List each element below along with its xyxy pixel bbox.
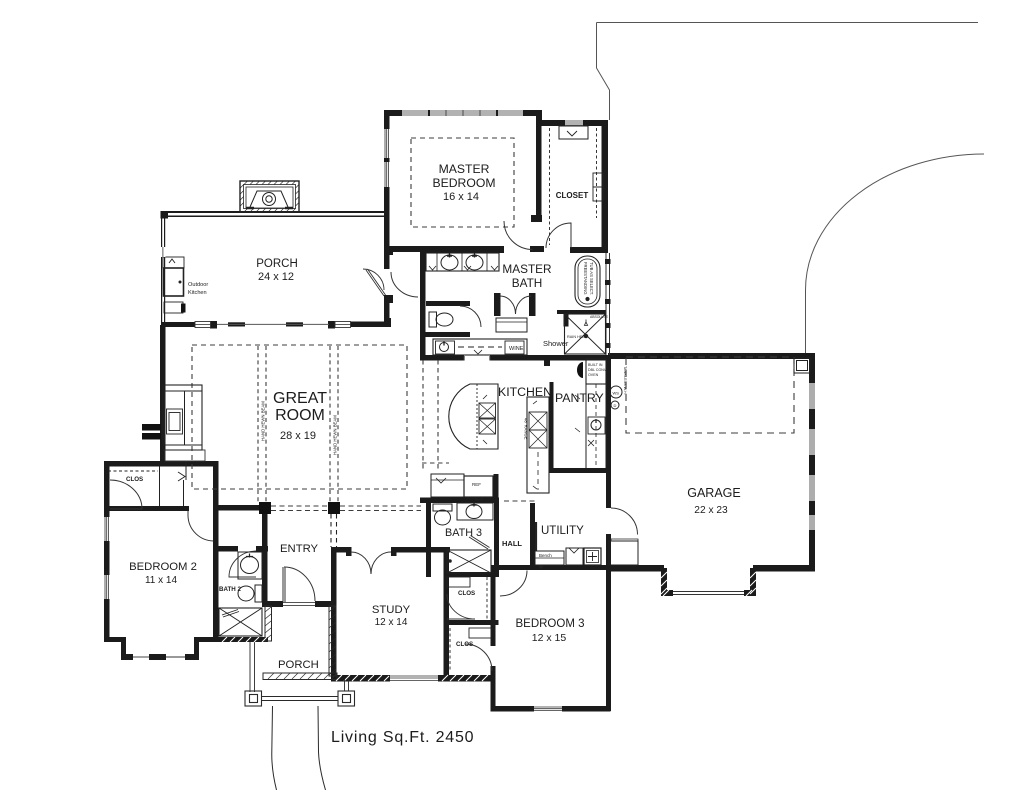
svg-text:ABSOLUTE: ABSOLUTE	[590, 315, 609, 319]
svg-text:16 x 14: 16 x 14	[443, 191, 479, 203]
svg-text:PANTRY: PANTRY	[555, 391, 604, 405]
svg-text:PORCH: PORCH	[256, 258, 298, 270]
svg-text:BEDROOM 3: BEDROOM 3	[515, 618, 584, 630]
svg-text:24 x 12: 24 x 12	[258, 271, 294, 283]
svg-text:48' RANGE: 48' RANGE	[524, 418, 529, 440]
svg-text:PORCH: PORCH	[278, 659, 319, 671]
svg-text:HAND HEWN BEAM: HAND HEWN BEAM	[333, 415, 338, 455]
svg-text:WS: WS	[613, 391, 620, 396]
svg-text:28 x 19: 28 x 19	[280, 430, 316, 442]
svg-text:12 x 15: 12 x 15	[532, 632, 567, 644]
svg-text:12 x 14: 12 x 14	[375, 617, 408, 628]
svg-text:MASTER: MASTER	[439, 162, 490, 176]
svg-text:BATH 3: BATH 3	[445, 527, 482, 539]
svg-text:WINE: WINE	[509, 346, 524, 352]
svg-text:CLOS: CLOS	[456, 641, 473, 648]
svg-text:BATH 2: BATH 2	[219, 586, 241, 593]
svg-text:BEDROOM: BEDROOM	[433, 176, 496, 190]
svg-text:RAIN HEAD: RAIN HEAD	[567, 335, 588, 339]
svg-text:ENTRY: ENTRY	[280, 543, 319, 555]
svg-text:CLOSET: CLOSET	[556, 191, 589, 200]
svg-text:HAND HEWN BEAM: HAND HEWN BEAM	[261, 401, 266, 441]
svg-text:DBL CONV: DBL CONV	[588, 368, 607, 372]
svg-text:UTILITY: UTILITY	[541, 525, 584, 537]
svg-text:Outdoor: Outdoor	[188, 282, 208, 288]
svg-text:Shower: Shower	[543, 339, 569, 348]
svg-text:GREAT: GREAT	[273, 390, 327, 407]
svg-text:BEDROOM 2: BEDROOM 2	[129, 561, 197, 573]
svg-text:Living Sq.Ft. 2450: Living Sq.Ft. 2450	[331, 729, 474, 746]
svg-text:OVEN: OVEN	[588, 373, 599, 377]
svg-text:BUILT IN: BUILT IN	[588, 363, 603, 367]
svg-text:KITCHEN: KITCHEN	[498, 385, 552, 399]
svg-text:Kitchen: Kitchen	[188, 290, 207, 296]
svg-text:Bench: Bench	[539, 553, 552, 558]
svg-text:22 x 23: 22 x 23	[694, 505, 728, 516]
svg-text:TUB AS SELECT.: TUB AS SELECT.	[589, 262, 594, 295]
svg-text:REF: REF	[472, 482, 481, 487]
svg-text:STUDY: STUDY	[372, 604, 411, 616]
svg-text:11 x 14: 11 x 14	[145, 575, 177, 586]
svg-text:TANKLESS W.H.: TANKLESS W.H.	[623, 366, 627, 395]
svg-text:ROOM: ROOM	[275, 407, 325, 424]
svg-text:GARAGE: GARAGE	[687, 486, 741, 500]
svg-text:MASTER: MASTER	[502, 262, 551, 276]
svg-text:D: D	[614, 403, 617, 408]
svg-text:CLOS: CLOS	[126, 476, 143, 483]
svg-text:BATH: BATH	[512, 276, 543, 290]
svg-text:HALL: HALL	[502, 539, 522, 548]
svg-text:CLOS: CLOS	[458, 590, 475, 597]
svg-text:FREESTANDING: FREESTANDING	[583, 262, 588, 295]
